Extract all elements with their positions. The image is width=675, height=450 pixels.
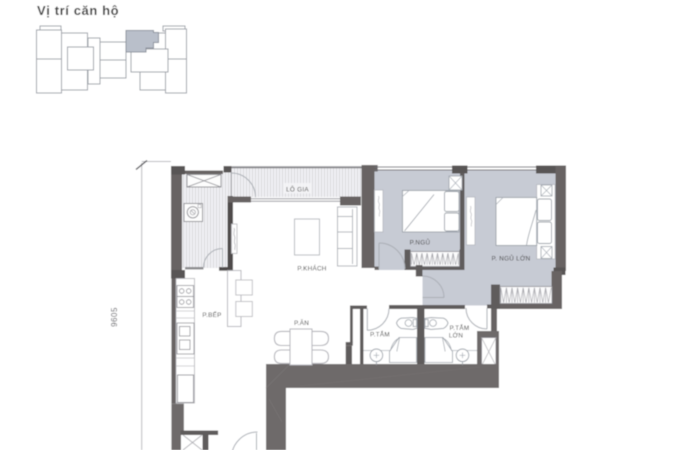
svg-text:P.ĂN: P.ĂN — [294, 318, 309, 327]
svg-text:LÔ GIA: LÔ GIA — [286, 185, 309, 194]
svg-text:LỚN: LỚN — [449, 331, 464, 340]
svg-text:Vị trí căn hộ: Vị trí căn hộ — [37, 3, 119, 18]
svg-text:P.KHÁCH: P.KHÁCH — [297, 264, 326, 273]
svg-text:P.TẮM: P.TẮM — [370, 330, 390, 339]
svg-text:P.NGỦ: P.NGỦ — [410, 238, 431, 247]
svg-text:P. NGỦ LỚN: P. NGỦ LỚN — [491, 254, 530, 263]
svg-text:9605: 9605 — [110, 307, 119, 327]
svg-text:P.TẮM: P.TẮM — [450, 323, 470, 332]
